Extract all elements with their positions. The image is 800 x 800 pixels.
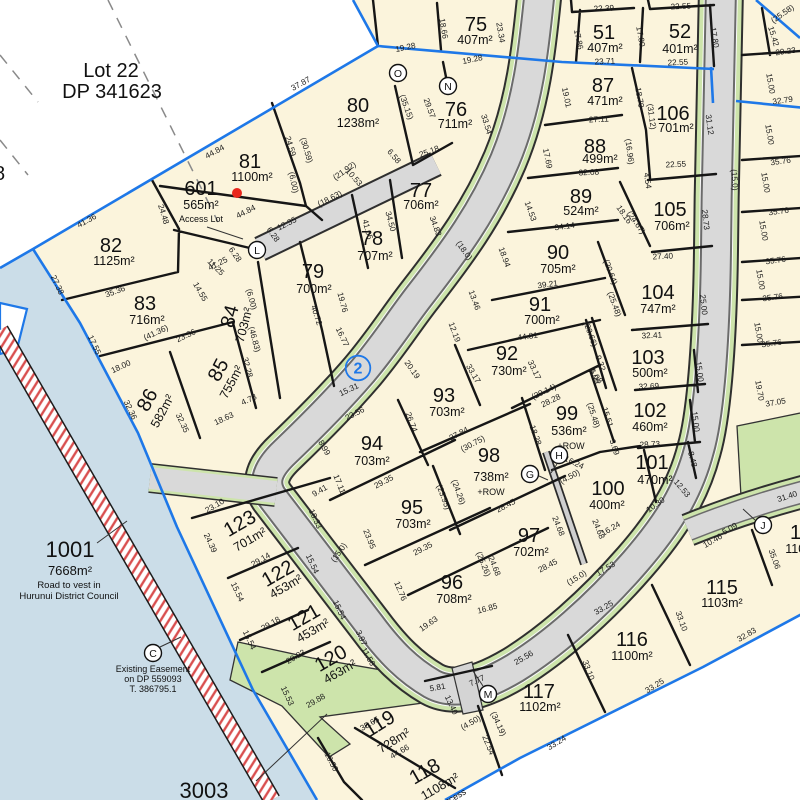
lot22-dp-label: DP 341623 bbox=[62, 81, 162, 103]
dimension-label: 22.55 bbox=[670, 1, 691, 11]
easement-label3: T. 386795.1 bbox=[129, 684, 176, 694]
marker-letter-O: O bbox=[394, 68, 402, 80]
lot-number: 52 bbox=[669, 21, 691, 43]
lot-number: 93 bbox=[433, 385, 455, 407]
dimension-label: (15.0) bbox=[729, 169, 739, 191]
lot1001-number: 1001 bbox=[46, 537, 95, 562]
easement-label1: Existing Easement bbox=[116, 664, 191, 674]
lot-area: 747m² bbox=[640, 302, 675, 316]
lot-area: 706m² bbox=[403, 198, 438, 212]
lot-area: 499m² bbox=[582, 152, 617, 166]
lot-number: 96 bbox=[441, 572, 463, 594]
lot-area: 1100m² bbox=[785, 542, 800, 556]
lot22-label: Lot 22 bbox=[83, 60, 139, 82]
lot-area: 700m² bbox=[524, 313, 559, 327]
lot-number: 95 bbox=[401, 497, 423, 519]
dimension-label: 32.08 bbox=[578, 167, 599, 177]
marker-letter-H: H bbox=[555, 450, 563, 462]
lot-area: 460m² bbox=[632, 420, 667, 434]
lot-number: 116 bbox=[616, 629, 648, 651]
marker-letter-C: C bbox=[149, 648, 157, 660]
marker-letter-L: L bbox=[254, 245, 260, 257]
lot-area: 407m² bbox=[587, 41, 622, 55]
lot-area: 703m² bbox=[395, 517, 430, 531]
lot1001-note2: Hurunui District Council bbox=[19, 591, 118, 602]
lot-number: 97 bbox=[518, 525, 540, 547]
lot-area: 703m² bbox=[429, 405, 464, 419]
lot-area: 1100m² bbox=[231, 170, 272, 184]
lot-area: 400m² bbox=[589, 498, 624, 512]
lot-number: 102 bbox=[633, 400, 666, 422]
lot-area: 536m² bbox=[551, 424, 586, 438]
lot-area: 706m² bbox=[654, 219, 689, 233]
lot-area: 708m² bbox=[436, 592, 471, 606]
lot-extra: +ROW bbox=[477, 487, 505, 497]
marker-letter-G: G bbox=[526, 469, 534, 481]
lot-area: 707m² bbox=[357, 249, 392, 263]
lot-area: 700m² bbox=[296, 282, 331, 296]
lot-area: 524m² bbox=[563, 204, 598, 218]
lot-area: 1103m² bbox=[701, 596, 742, 610]
lot-area: 1238m² bbox=[337, 116, 379, 130]
lot-area: 730m² bbox=[491, 364, 526, 378]
lot-area: 701m² bbox=[658, 121, 693, 135]
lot-extra: Access Lot bbox=[179, 214, 224, 224]
lot-number: 80 bbox=[347, 95, 369, 117]
lot-area: 703m² bbox=[354, 454, 389, 468]
lot-area: 565m² bbox=[183, 198, 218, 212]
dimension-label: 23.71 bbox=[594, 56, 615, 66]
lot-number: 104 bbox=[641, 282, 674, 304]
lot1001-area: 7668m² bbox=[48, 563, 93, 578]
marker-letter-M: M bbox=[484, 689, 493, 701]
subdivision-map: Lot 22 DP 341623 1001 7668m² Road to ves… bbox=[0, 0, 800, 800]
lot-area: 738m² bbox=[473, 470, 508, 484]
lot-area: 711m² bbox=[438, 117, 473, 131]
survey-point-dot bbox=[232, 188, 242, 198]
dimension-label: 22.55 bbox=[665, 159, 686, 169]
lot-number: 90 bbox=[547, 242, 569, 264]
lot3003-number: 3003 bbox=[180, 778, 229, 800]
lot-area: 407m² bbox=[457, 33, 492, 47]
easement-label2: on DP 559093 bbox=[124, 674, 181, 684]
lot-number: 92 bbox=[496, 343, 518, 365]
lot-number: 101 bbox=[635, 452, 668, 474]
lot-area: 705m² bbox=[540, 262, 575, 276]
marker-letter-N: N bbox=[444, 81, 452, 93]
road-number: 2 bbox=[354, 361, 363, 378]
dimension-label: 28.73 bbox=[639, 439, 660, 449]
lot-number: 99 bbox=[556, 403, 578, 425]
dimension-label: 27.40 bbox=[652, 251, 673, 261]
lot-area: 1102m² bbox=[519, 700, 560, 714]
lot-number: 114 bbox=[790, 522, 800, 544]
dimension-label: 32.41 bbox=[641, 330, 662, 340]
lot-number: 100 bbox=[591, 478, 624, 500]
partial-lot-number: 8 bbox=[0, 163, 5, 185]
lot-number: 94 bbox=[361, 433, 383, 455]
survey-plan-canvas: Lot 22 DP 341623 1001 7668m² Road to ves… bbox=[0, 0, 800, 800]
dimension-label: 22.55 bbox=[667, 57, 688, 67]
lot-area: 716m² bbox=[129, 313, 164, 327]
lot-area: 1100m² bbox=[611, 649, 652, 663]
dimension-label: 27.11 bbox=[589, 114, 610, 124]
lot-area: 1125m² bbox=[93, 254, 134, 268]
lot-number: 105 bbox=[653, 199, 686, 221]
lot-number: 79 bbox=[302, 261, 324, 283]
lot-number: 98 bbox=[478, 445, 500, 467]
lot-area: 500m² bbox=[632, 366, 667, 380]
road-stub-west bbox=[150, 478, 276, 492]
lot-number: 83 bbox=[134, 293, 156, 315]
lot-number: 601 bbox=[184, 178, 217, 200]
lot1001-note1: Road to vest in bbox=[37, 580, 100, 591]
marker-letter-J: J bbox=[760, 520, 765, 532]
dimension-label: 32.69 bbox=[638, 381, 659, 391]
dimension-label: 22.39 bbox=[593, 3, 614, 13]
lot-area: 470m² bbox=[637, 473, 672, 487]
lot-area: 471m² bbox=[587, 94, 622, 108]
lot-area: 401m² bbox=[662, 42, 697, 56]
lot-area: 702m² bbox=[513, 545, 548, 559]
